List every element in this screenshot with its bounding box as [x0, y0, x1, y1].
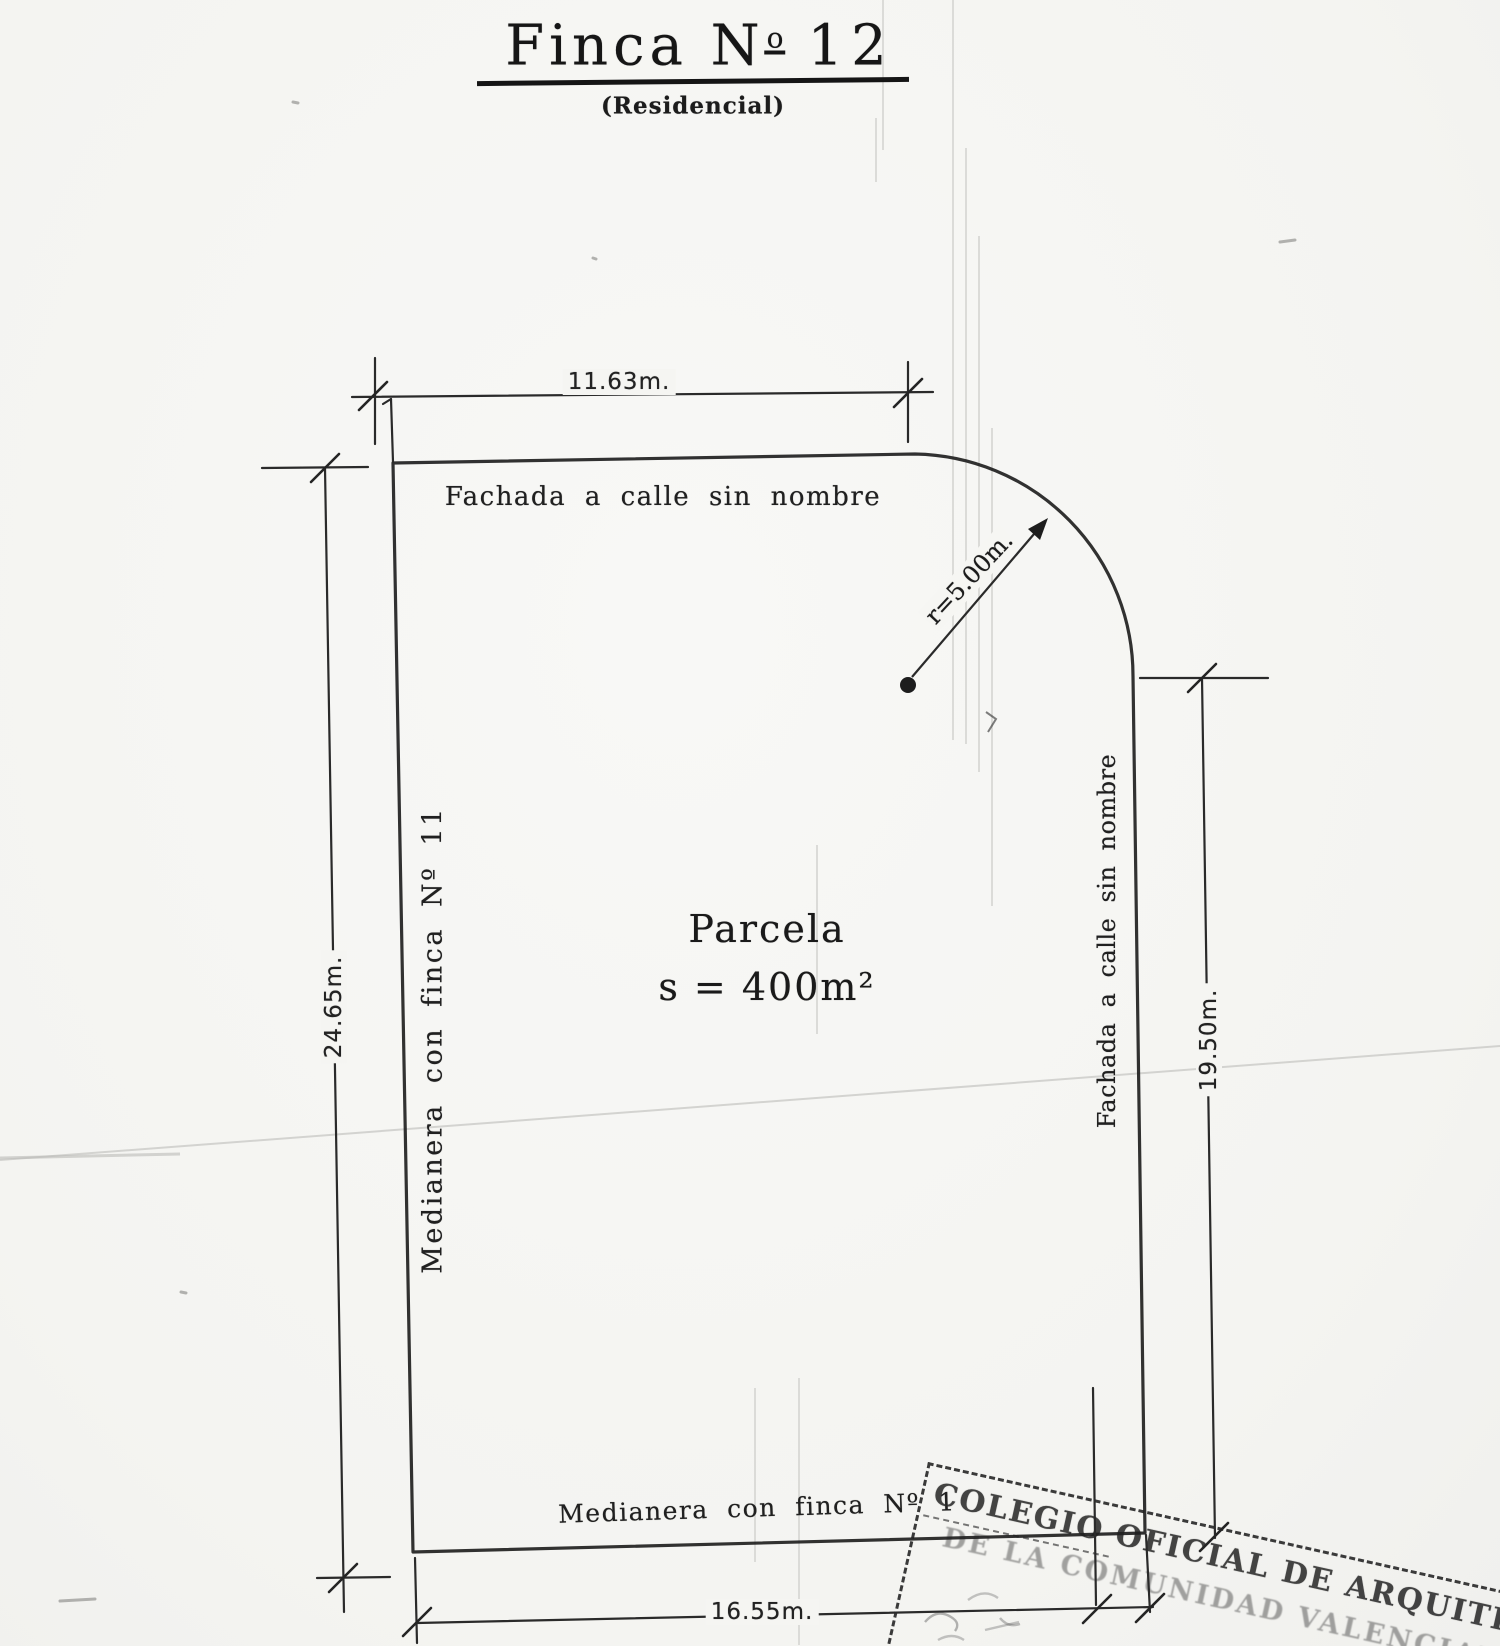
dim-value-bottom: 16.55m.	[706, 1599, 819, 1625]
dim-value-top: 11.63m.	[563, 369, 676, 395]
dimension-labels: 11.63m. 24.65m. 19.50m. 16.55m. r=5.00m.	[0, 0, 1500, 1646]
scanned-site-plan: Finca No12 (Residencial) Fachada a calle…	[0, 0, 1500, 1646]
dim-value-right: 19.50m.	[1196, 984, 1222, 1097]
dim-value-left: 24.65m.	[321, 951, 347, 1064]
dim-value-corner-radius: r=5.00m.	[918, 525, 1020, 631]
